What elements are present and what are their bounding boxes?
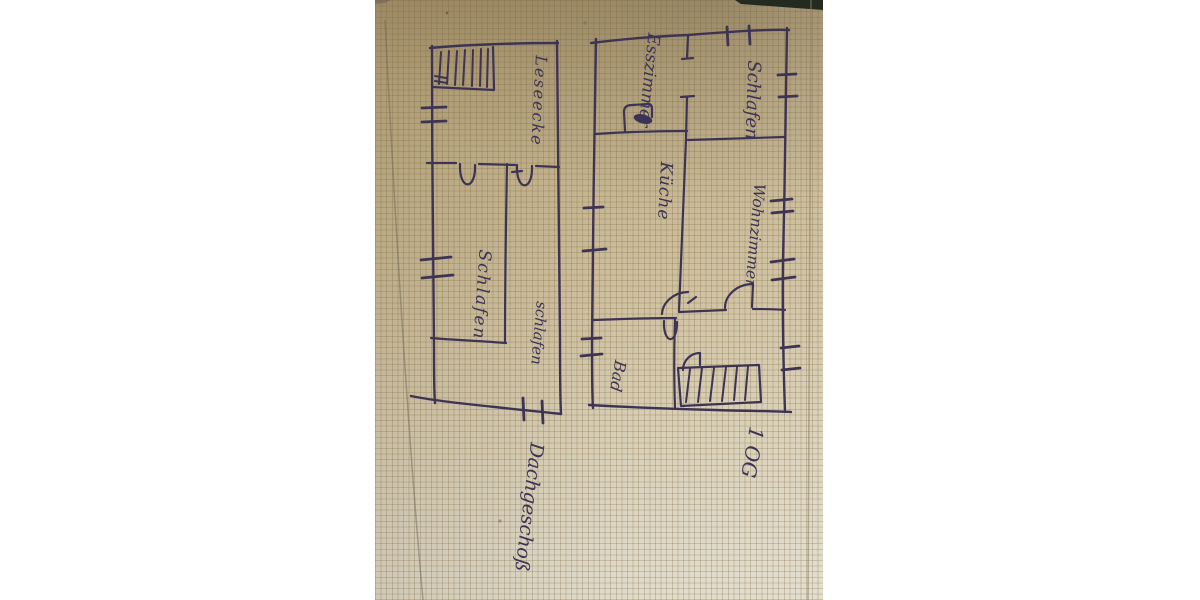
attic-window-ticks-left-upper (422, 107, 446, 122)
og-outer-right-wall (783, 28, 787, 412)
attic-outer-right-wall (557, 41, 561, 414)
upper-floor-plan (581, 26, 800, 412)
og-window-ticks-right-2 (771, 199, 793, 213)
attic-outer-left-wall (432, 46, 435, 403)
og-bad-top-wall (593, 318, 676, 320)
floorplan-sketch: Esszimmer Schlafen Küche Wohnzimmer Bad … (375, 0, 823, 600)
label-esszimmer: Esszimmer (634, 31, 664, 129)
attic-door-tab-left (460, 164, 475, 184)
label-bad: Bad (606, 358, 630, 393)
attic-outer-bottom-wall (411, 396, 561, 414)
attic-stairs-hatch (435, 49, 488, 87)
og-divider-wall-mid (679, 139, 686, 311)
paper-right-edge-line (808, 0, 811, 600)
og-esszimmer-kueche-wall (595, 131, 687, 134)
og-stairs-hatch (686, 366, 748, 402)
attic-hall-wall (427, 163, 559, 167)
label-kueche: Küche (653, 160, 676, 221)
og-window-ticks-top (727, 26, 750, 45)
attic-window-ticks-left-lower (421, 257, 453, 278)
small-smudge (583, 21, 586, 24)
attic-door-tab-right (512, 165, 532, 185)
label-wohnzimmer: Wohnzimmer (741, 183, 768, 289)
label-attic-schlafen-2: schlafen (527, 301, 550, 366)
og-wohnzimmer-bottom-wall (679, 309, 785, 312)
pencil-dot (498, 519, 501, 522)
screenshot-root: Esszimmer Schlafen Küche Wohnzimmer Bad … (0, 0, 1200, 600)
dark-corner-speck (375, 0, 391, 4)
og-divider-wall-top (681, 36, 694, 139)
label-floor-1og: 1 OG (736, 425, 769, 480)
label-attic-schlafen-1: Schlafen (468, 249, 494, 341)
attic-inner-vertical-wall (505, 164, 507, 342)
label-leseecke: Leseecke (527, 54, 551, 147)
og-schlafen-wohnzimmer-wall (688, 137, 784, 140)
red-speck (446, 12, 449, 15)
og-outer-left-wall (592, 39, 596, 408)
label-og-schlafen: Schlafen (741, 60, 765, 140)
paper-margin-line (385, 20, 423, 600)
og-wohnzimmer-door-arc (725, 284, 753, 308)
og-window-ticks-right-1 (778, 74, 797, 97)
og-outer-top-wall (591, 30, 789, 43)
og-bad-right-wall (674, 318, 675, 408)
dark-table-edge (735, 0, 823, 10)
floorplan-photo-paper: Esszimmer Schlafen Küche Wohnzimmer Bad … (375, 0, 823, 600)
label-floor-dachgeschoss: Dachgeschoß (510, 440, 548, 572)
